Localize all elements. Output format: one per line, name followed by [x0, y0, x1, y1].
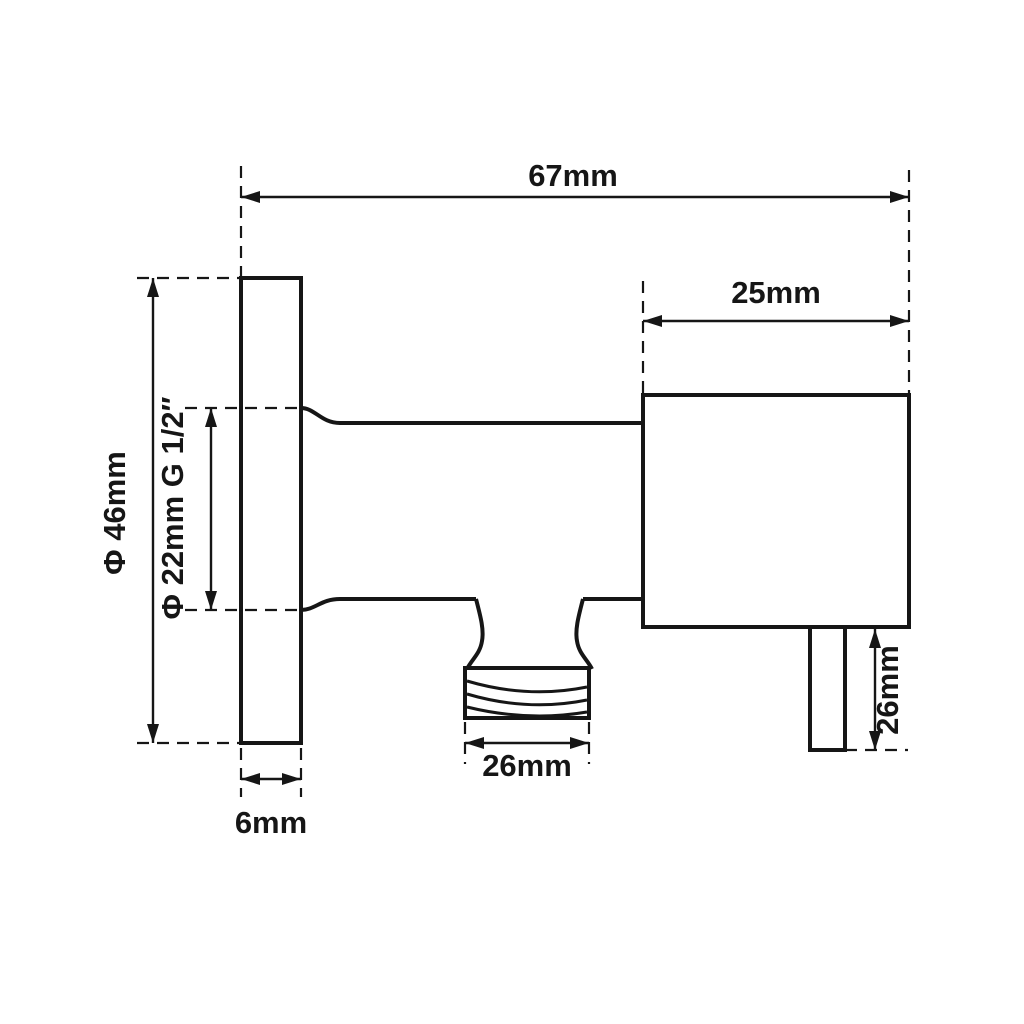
dim-label-overall-width: 67mm	[528, 158, 618, 193]
dim-label-flange-thickness: 6mm	[235, 805, 307, 840]
technical-drawing: 67mm 25mm Φ 46mm Φ 22mm G 1/2″ 6mm	[0, 0, 1024, 1024]
dim-label-body-width: 25mm	[731, 275, 821, 310]
dimension-body-width: 25mm	[643, 275, 909, 395]
thread-line-3	[467, 707, 587, 716]
thread-line-2	[467, 694, 587, 705]
dim-label-inlet-spec: Φ 22mm G 1/2″	[155, 396, 190, 619]
dimension-outlet-width: 26mm	[465, 722, 589, 783]
thread-line-1	[467, 681, 587, 692]
dimension-inlet-spec: Φ 22mm G 1/2″	[155, 396, 301, 619]
inlet-pipe-top-edge	[301, 408, 643, 423]
wall-flange	[241, 278, 301, 743]
outlet-spool-left-side	[467, 599, 483, 669]
outlet-stub	[810, 629, 845, 750]
dimension-flange-thickness: 6mm	[235, 748, 307, 840]
dim-label-outlet-width: 26mm	[482, 748, 572, 783]
dim-label-stub-height: 26mm	[870, 645, 905, 735]
dimension-stub-height: 26mm	[845, 629, 908, 750]
valve-body	[643, 395, 909, 627]
inlet-pipe-bottom-edge-left	[301, 599, 476, 610]
outlet-spool-right-side	[576, 599, 592, 669]
dim-label-flange-diameter: Φ 46mm	[97, 451, 132, 575]
diagram-canvas: 67mm 25mm Φ 46mm Φ 22mm G 1/2″ 6mm	[0, 0, 1024, 1024]
valve-outline	[241, 278, 909, 750]
